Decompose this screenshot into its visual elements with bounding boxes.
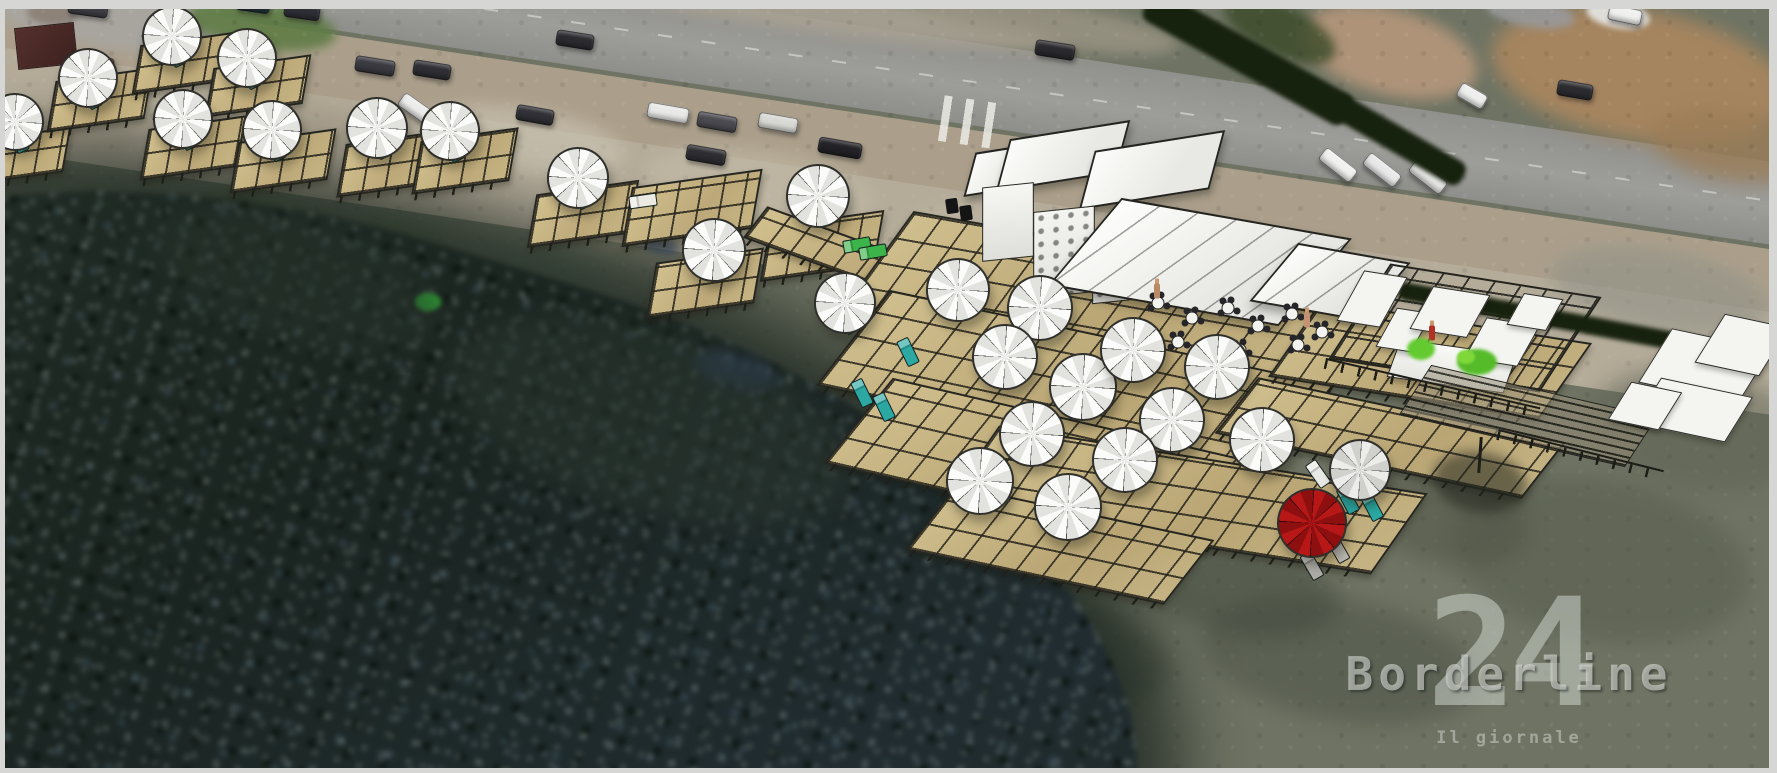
structure-wall	[982, 182, 1034, 262]
waste-bin	[959, 205, 973, 222]
waste-bin	[945, 198, 959, 215]
restaurant-table	[1172, 336, 1185, 349]
watermark-subtitle: Il giornale	[1436, 730, 1582, 747]
terrain-patch	[1457, 350, 1475, 364]
parked-car	[1455, 82, 1489, 111]
restaurant-table	[1186, 312, 1199, 325]
aerial-beach-render: 24 Borderline Il giornale	[0, 0, 1777, 773]
restaurant-table	[1252, 320, 1265, 333]
person-figure	[1154, 284, 1160, 299]
person-figure	[1429, 326, 1435, 341]
restaurant-table	[1286, 308, 1299, 321]
person-figure	[1304, 313, 1310, 328]
restaurant-table	[1222, 302, 1235, 315]
pedestrian-crosswalk	[938, 95, 998, 148]
terrain-patch	[1407, 338, 1435, 360]
restaurant-table	[1316, 326, 1329, 339]
restaurant-table	[1292, 339, 1305, 352]
